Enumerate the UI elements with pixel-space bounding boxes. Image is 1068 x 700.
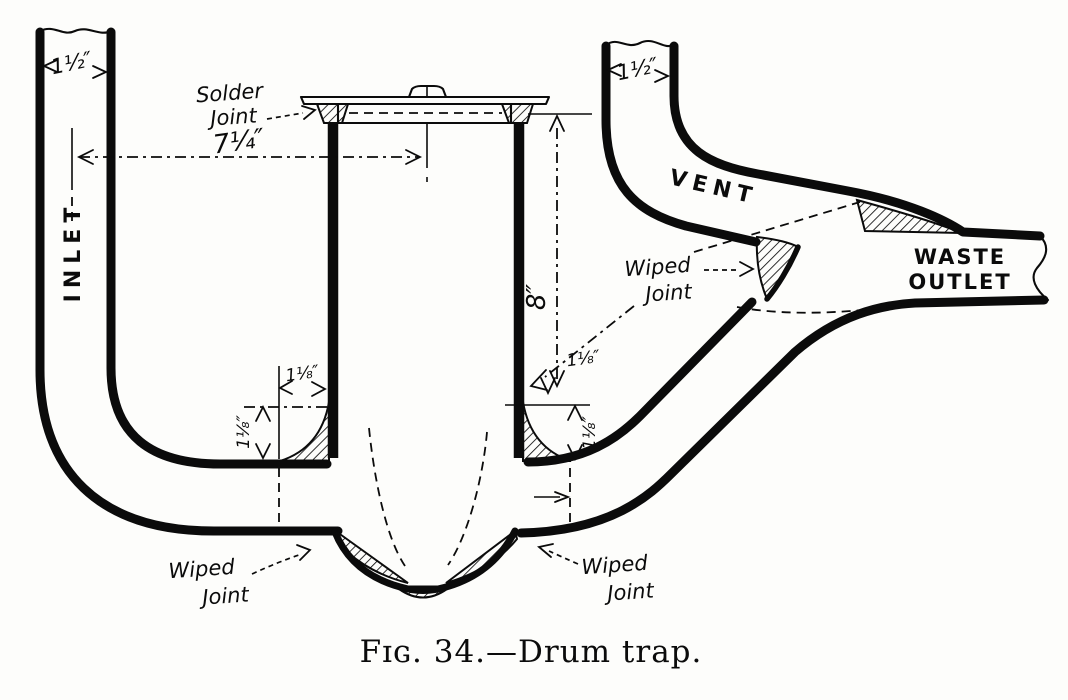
figure-caption: Fɪɢ. 34.—Drum trap. (360, 634, 703, 670)
wiped-joint-bl-line2: Joint (198, 582, 251, 610)
solder-joint-leader (267, 113, 303, 119)
solder-joint-callout: Solder Joint (195, 79, 315, 131)
dim-arrow-right (312, 382, 325, 396)
wiped-joint-callout-middle: Wiped Joint (624, 253, 753, 307)
vent-right-wall-and-waste-top (674, 46, 1040, 236)
dim-right-vertical-text: 1⅛″ (580, 416, 600, 450)
inlet-break-line (40, 29, 111, 33)
wiped-joint-bl-line1: Wiped (168, 555, 236, 584)
waste-break-line (1034, 236, 1048, 300)
trap-bottom-cup (335, 428, 517, 598)
dim-arrow-right (93, 66, 106, 78)
wiped-joint-br-line1: Wiped (581, 551, 649, 580)
wiped-joint-br-arrow (539, 544, 553, 557)
dim-vent-width-text: 1½″ (615, 53, 661, 85)
dim-arrow-down (256, 444, 270, 458)
dim-center-to-center: 7¼″ (72, 124, 427, 222)
dim-drum-height: 8″ (522, 114, 592, 386)
hidden-line-left (369, 428, 405, 566)
labels: INLET VENT WASTE OUTLET (61, 165, 1012, 302)
dim-right-horizontal-text: 1⅛″ (565, 347, 602, 372)
wiped-joint-callout-bottom-left: Wiped Joint (168, 545, 310, 610)
drum-lid (301, 86, 549, 123)
dim-inlet-width: 1½″ (44, 47, 106, 79)
dim-left-vertical-text: 1⅛″ (234, 415, 254, 449)
drum-trap-diagram: 1½″ 1½″ 7¼″ 8″ (0, 0, 1068, 700)
dim-inlet-width-text: 1½″ (49, 47, 95, 79)
wiped-joint-bl-leader (252, 555, 299, 574)
wiped-fillet-left (280, 402, 329, 461)
wiped-joint-mid-line2: Joint (641, 279, 694, 307)
dim-arrow-up (256, 407, 270, 421)
outlet-upper-wall (528, 302, 752, 462)
dim-left-horizontal-text: 1⅛″ (284, 362, 321, 387)
hidden-line-right (448, 432, 487, 565)
solder-joint-arrow (302, 106, 315, 119)
inlet-label: INLET (61, 202, 86, 303)
dim-height-text: 8″ (522, 284, 552, 311)
waste-outlet-label-line1: WASTE (914, 245, 1006, 269)
dim-arrow-down-small (541, 378, 555, 393)
solder-joint-text-line2: Joint (206, 103, 259, 131)
wiped-joint-mid-arrow (740, 262, 753, 276)
cup-wiped-hatch-right (446, 531, 517, 583)
vent-break-line (606, 41, 674, 46)
wiped-joint-br-line2: Joint (603, 578, 656, 606)
figure-page: 1½″ 1½″ 7¼″ 8″ (0, 0, 1068, 700)
dim-vent-width: 1½″ (608, 53, 668, 85)
wiped-joint-br-leader (549, 551, 578, 564)
wiped-joint-mid-line1: Wiped (624, 253, 692, 282)
wiped-fillet-right (523, 402, 571, 461)
wiped-joint-callout-bottom-right: Wiped Joint (539, 544, 655, 606)
wiped-joint-bl-arrow (297, 545, 310, 560)
solder-joint-hatch-left (317, 104, 348, 123)
vent-pipe (606, 41, 1040, 242)
waste-outlet-label-line2: OUTLET (908, 270, 1011, 294)
